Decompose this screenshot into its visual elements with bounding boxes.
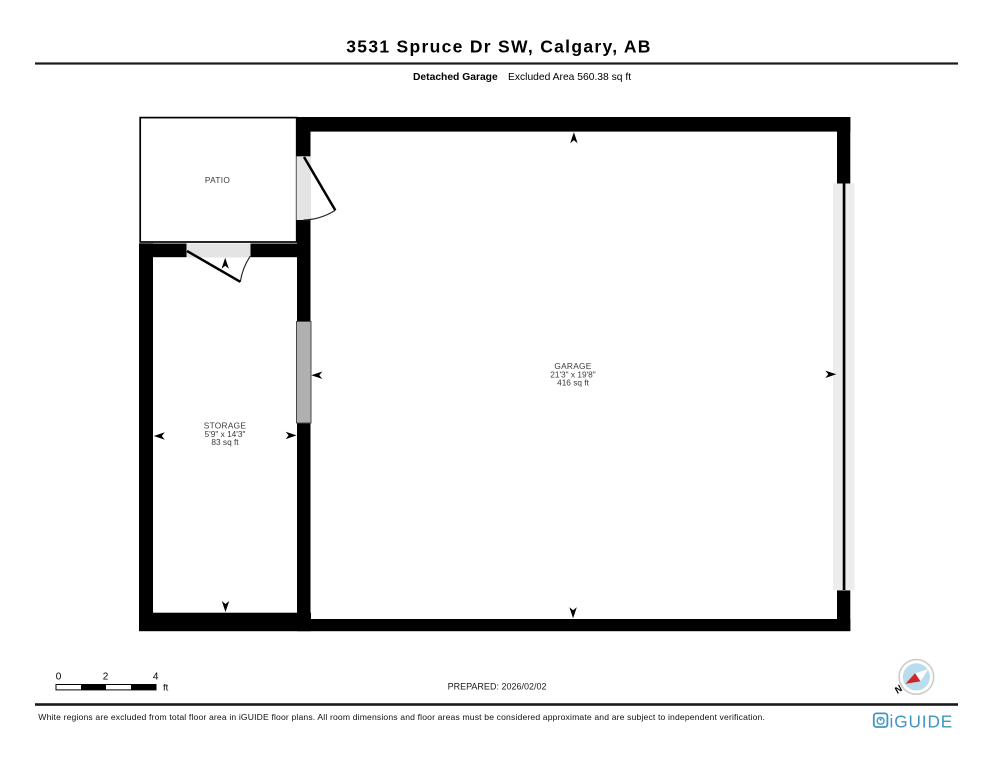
svg-text:2: 2 [103, 671, 109, 682]
svg-text:PREPARED: 2026/02/02: PREPARED: 2026/02/02 [448, 682, 547, 692]
svg-text:416 sq ft: 416 sq ft [557, 378, 590, 388]
svg-text:PATIO: PATIO [205, 175, 230, 185]
svg-text:83 sq ft: 83 sq ft [211, 437, 239, 447]
svg-text:ft: ft [163, 683, 169, 694]
svg-text:iGUIDE: iGUIDE [890, 711, 954, 731]
svg-text:3531 Spruce Dr SW, Calgary, AB: 3531 Spruce Dr SW, Calgary, AB [346, 37, 652, 57]
svg-text:Excluded Area 560.38 sq ft: Excluded Area 560.38 sq ft [508, 72, 631, 83]
svg-text:4: 4 [153, 671, 159, 682]
svg-text:0: 0 [56, 671, 62, 682]
svg-text:White regions are excluded fro: White regions are excluded from total fl… [38, 712, 765, 722]
svg-text:Detached Garage: Detached Garage [413, 72, 498, 83]
